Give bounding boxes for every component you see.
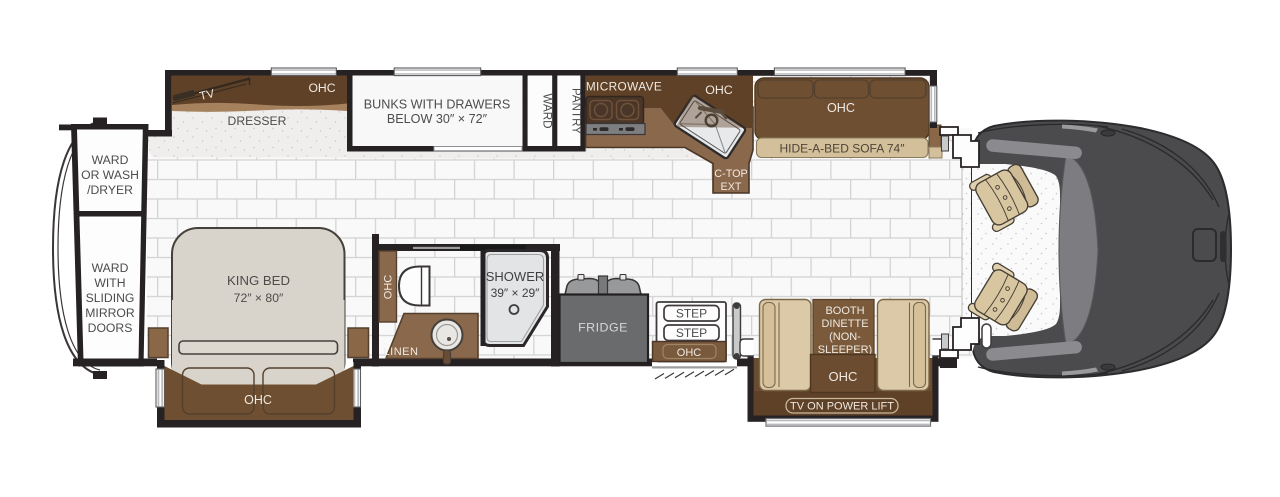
svg-text:C-TOP: C-TOP [714,168,747,180]
svg-text:MICROWAVE: MICROWAVE [586,80,662,94]
svg-text:BELOW 30″ × 72″: BELOW 30″ × 72″ [387,112,488,126]
svg-text:(NON-: (NON- [829,331,861,343]
svg-text:DOORS: DOORS [88,321,133,335]
svg-text:DRESSER: DRESSER [228,114,287,128]
svg-text:WARD: WARD [541,94,554,129]
svg-text:OHC: OHC [677,347,702,359]
svg-text:FRIDGE: FRIDGE [578,321,628,335]
svg-text:OHC: OHC [827,101,855,115]
svg-text:WARD: WARD [92,153,129,167]
svg-text:MIRROR: MIRROR [85,306,135,320]
svg-text:HIDE-A-BED SOFA 74″: HIDE-A-BED SOFA 74″ [780,142,906,156]
svg-text:EXT: EXT [721,181,742,193]
svg-text:LINEN: LINEN [384,346,419,358]
svg-text:WARD: WARD [92,261,129,275]
svg-text:39″ × 29″: 39″ × 29″ [491,286,541,300]
svg-text:DINETTE: DINETTE [821,318,868,330]
svg-text:PANTRY: PANTRY [570,88,583,134]
svg-text:OR WASH: OR WASH [81,168,139,182]
svg-text:OHC: OHC [308,81,335,95]
svg-text:BUNKS WITH DRAWERS: BUNKS WITH DRAWERS [364,98,510,112]
svg-text:WITH: WITH [94,276,125,290]
svg-text:OHC: OHC [705,83,733,97]
svg-text:TV ON POWER LIFT: TV ON POWER LIFT [790,401,894,413]
svg-text:OHC: OHC [383,275,395,300]
svg-text:SLIDING: SLIDING [86,291,135,305]
svg-text:OHC: OHC [829,369,858,384]
svg-text:STEP: STEP [676,326,707,340]
svg-text:OHC: OHC [244,393,272,407]
svg-text:/DRYER: /DRYER [87,183,133,197]
svg-text:SHOWER: SHOWER [486,269,545,284]
svg-text:STEP: STEP [676,307,707,321]
svg-text:BOOTH: BOOTH [825,305,864,317]
svg-text:72″ × 80″: 72″ × 80″ [234,291,284,305]
svg-text:KING BED: KING BED [227,273,290,288]
